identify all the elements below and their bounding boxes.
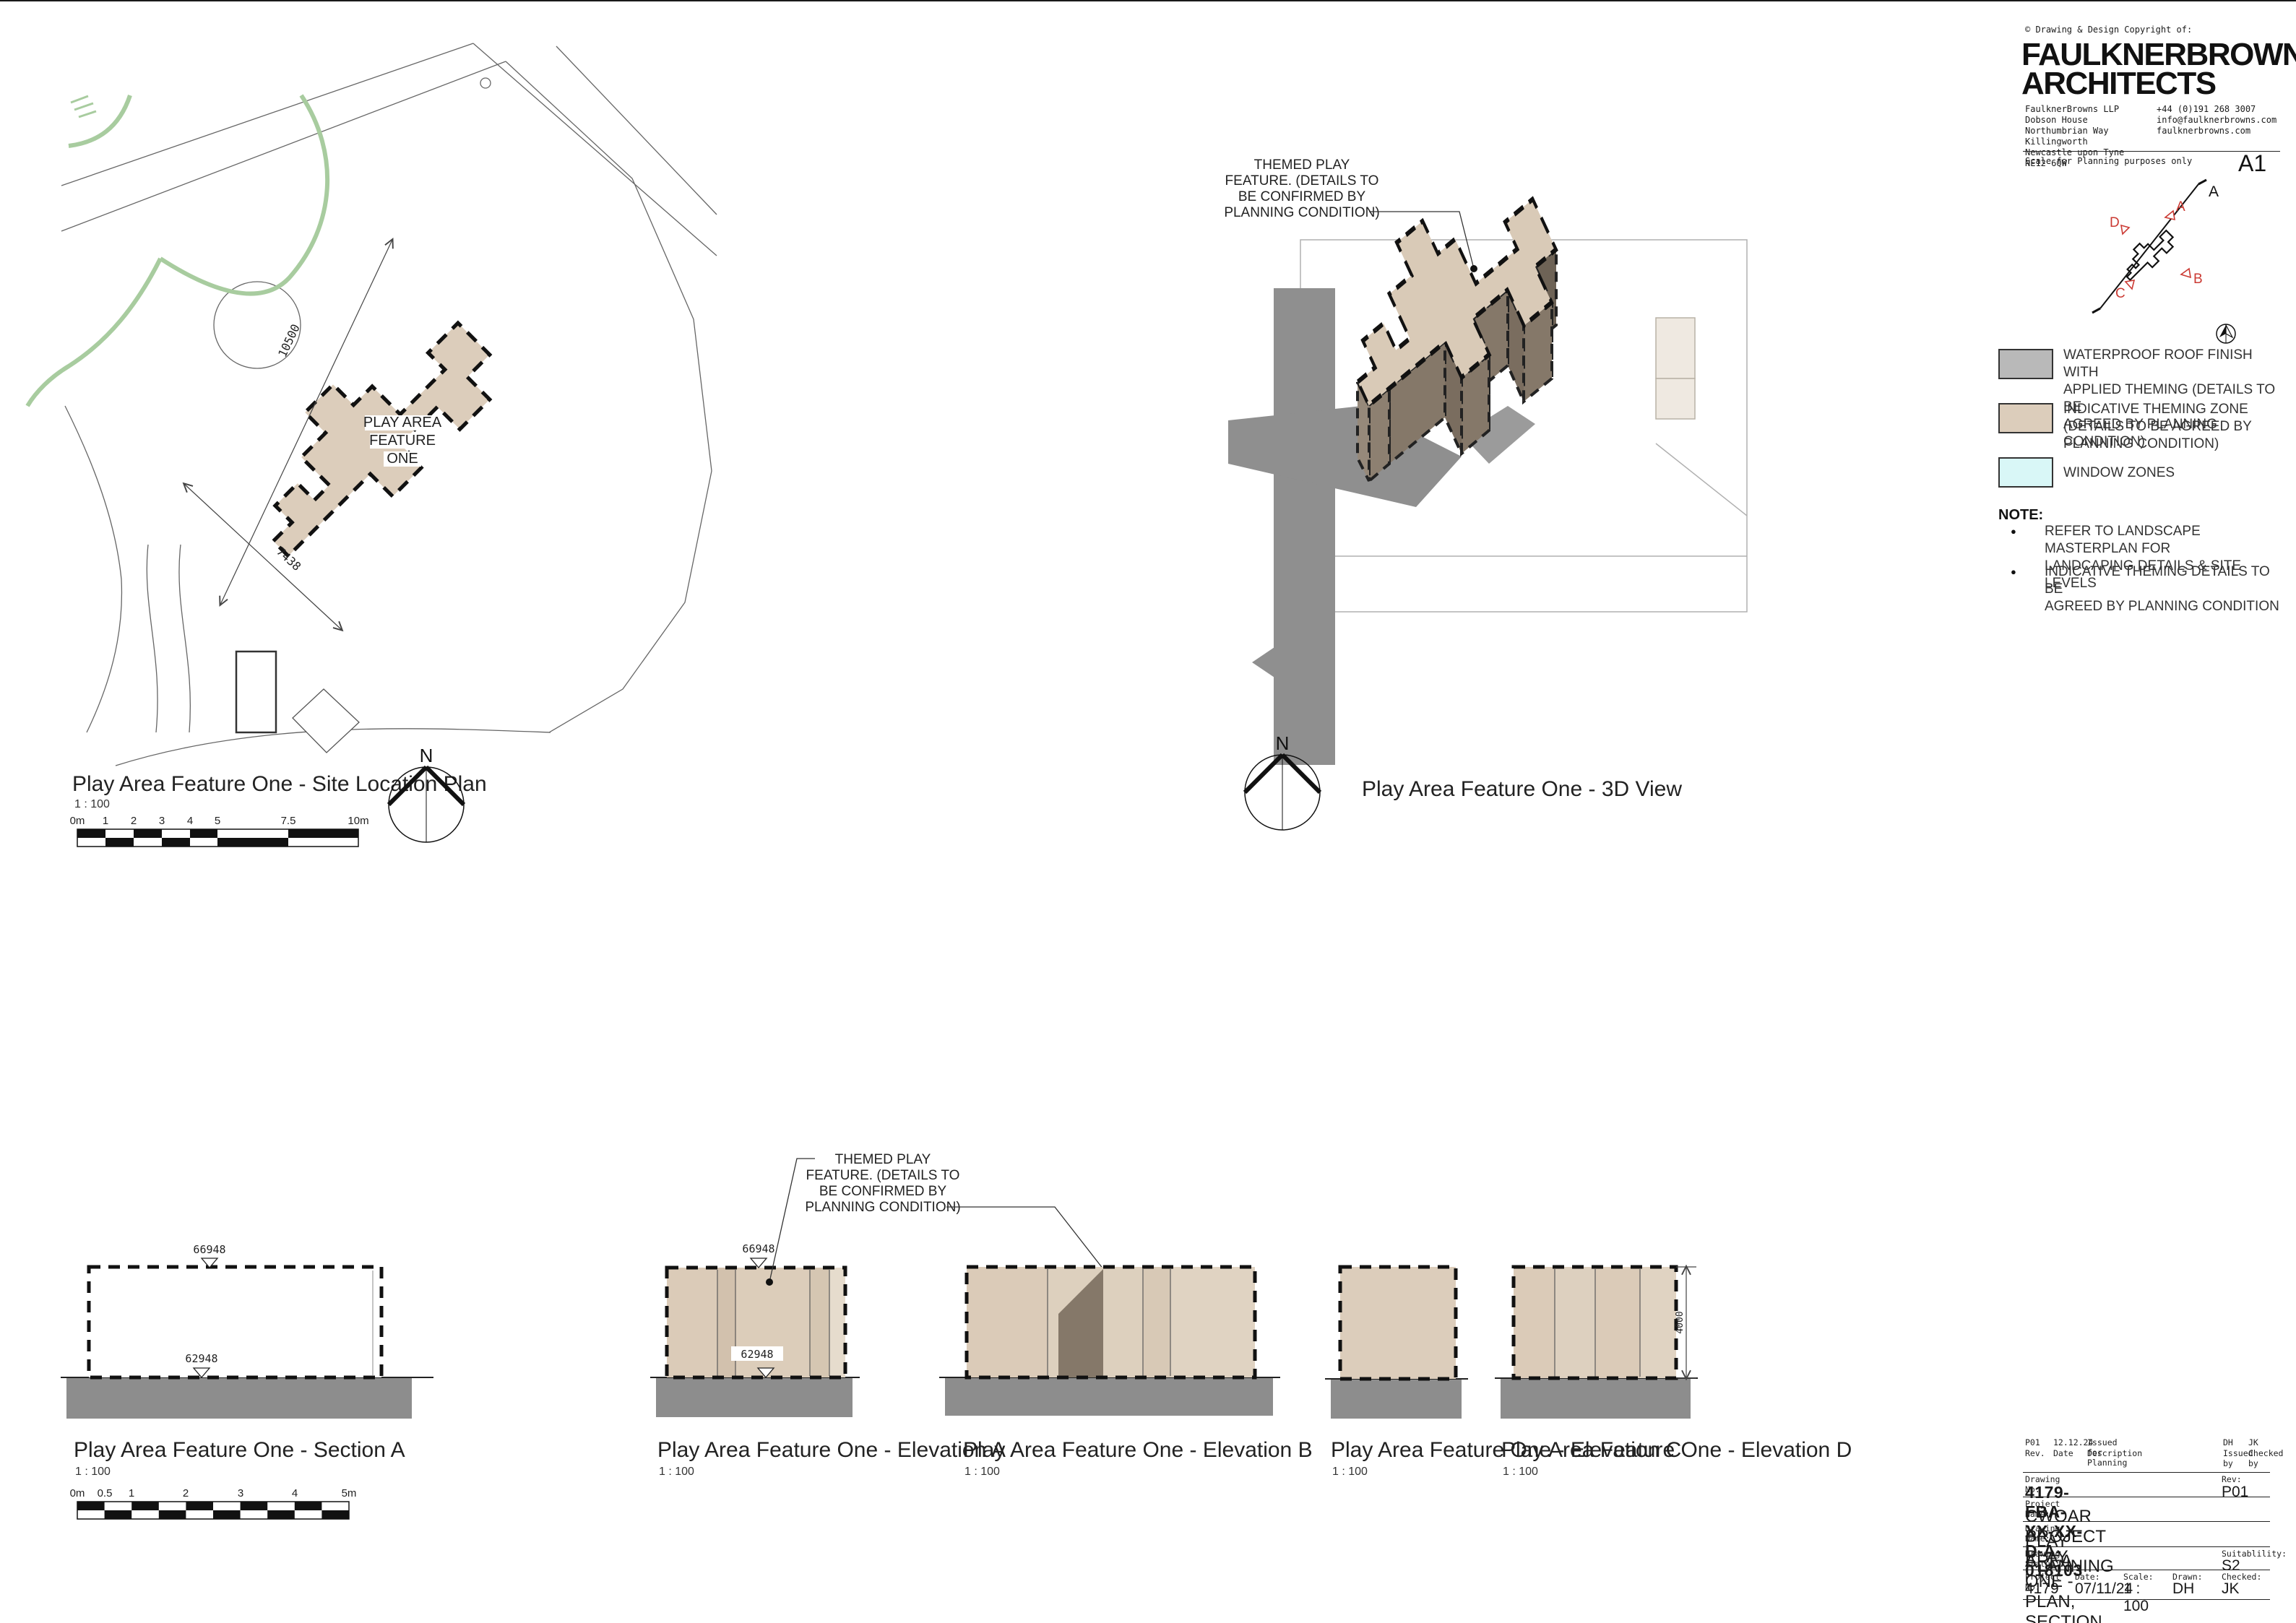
site-north-arrow: N [389,745,464,842]
project-no-value: 4179 [2025,1580,2059,1598]
svg-text:0.5: 0.5 [98,1487,113,1499]
site-scalebar: 0m 1 2 3 4 5 7.5 10m [70,815,369,847]
legend-swatch-window [1998,457,2053,488]
elevation-b-scale: 1 : 100 [964,1466,1000,1478]
drawing-canvas: 10500 7438 PLAY AREA FEATURE ONE Play Ar… [0,1,1994,1623]
elevation-a: 66948 62948 Play Area Feature One - Elev… [650,1242,1006,1478]
keyplan-elev-a: A [2176,199,2185,215]
svg-text:2: 2 [183,1487,189,1499]
level-ground: 62948 [185,1352,217,1365]
svg-text:PLANNING CONDITION): PLANNING CONDITION) [805,1200,960,1215]
site-plan-title: Play Area Feature One - Site Location Pl… [72,772,487,796]
svg-text:2: 2 [131,815,137,827]
section-a: 66948 62948 Play Area Feature One - Sect… [61,1243,433,1519]
rev-row-checked: JK [2248,1437,2258,1447]
rev-value: P01 [2222,1484,2248,1501]
svg-text:0m: 0m [70,1487,85,1499]
legend-label-theming: INDICATIVE THEMING ZONE (DETAILS TO BE A… [2063,401,2287,453]
site-plan-scale: 1 : 100 [74,798,110,810]
scale-value: 1 : 100 [2123,1580,2149,1615]
level-top: 66948 [742,1242,774,1255]
elevation-b: Play Area Feature One - Elevation B 1 : … [939,1267,1313,1478]
svg-text:FEATURE: FEATURE [369,433,436,449]
3d-window-zones [1656,318,1695,419]
north-label: N [1276,732,1290,754]
rev-head-rev: Rev. [2025,1448,2045,1458]
keyplan-elevation-arrows [2121,211,2191,289]
section-scalebar: 0m 0.5 1 2 3 4 5m [70,1487,357,1519]
svg-text:FEATURE. (DETAILS TO: FEATURE. (DETAILS TO [806,1168,960,1183]
svg-text:BE CONFIRMED BY: BE CONFIRMED BY [1238,189,1366,204]
elevation-d-title: Play Area Feature One - Elevation D [1501,1438,1852,1462]
copyright-note: © Drawing & Design Copyright of: [2025,25,2192,35]
notes-title: NOTE: [1998,507,2043,524]
drawn-value: DH [2172,1580,2194,1598]
svg-text:PLANNING CONDITION): PLANNING CONDITION) [1224,205,1379,220]
checked-value: JK [2222,1580,2240,1598]
level-ground: 62948 [741,1348,773,1361]
note-item-2: INDICATIVE THEMING DETAILS TO BE AGREED … [2045,563,2283,615]
drawing-sheet: 10500 7438 PLAY AREA FEATURE ONE Play Ar… [0,0,2296,1623]
3d-road-strip [1252,288,1335,765]
svg-text:THEMED PLAY: THEMED PLAY [835,1152,931,1167]
svg-text:PLAY AREA: PLAY AREA [363,415,442,430]
bullet-icon: ● [2011,526,2016,537]
svg-text:3: 3 [238,1487,243,1499]
legend-swatch-roof [1998,349,2053,379]
section-a-title: Play Area Feature One - Section A [74,1438,405,1462]
keyplan-elev-d: D [2110,215,2120,230]
rev-head-date: Date [2053,1448,2073,1458]
svg-text:4: 4 [187,815,193,827]
svg-text:7.5: 7.5 [281,815,296,827]
view-3d: THEMED PLAY FEATURE. (DETAILS TO BE CONF… [1224,149,1747,830]
rev-row-rev: P01 [2025,1437,2040,1447]
dim-4000: 4000 [1675,1311,1686,1333]
keyplan-elev-c: C [2115,286,2125,301]
svg-text:3: 3 [159,815,165,827]
rev-row-issued: DH [2223,1437,2233,1447]
keyplan-section-label: A [2209,183,2219,200]
elevation-d-scale: 1 : 100 [1503,1466,1538,1478]
svg-text:0m: 0m [70,815,85,827]
dim-10500: 10500 [275,322,303,360]
scale-note: Scale for Planning purposes only [2025,156,2192,166]
legend-label-window: WINDOW ZONES [2063,464,2287,482]
svg-text:THEMED PLAY: THEMED PLAY [1254,157,1350,173]
elevation-c-scale: 1 : 100 [1332,1466,1368,1478]
section-a-scale: 1 : 100 [75,1466,111,1478]
elevation-d: 4000 Play Area Feature One - Elevation D… [1495,1267,1852,1478]
firm-logo: FAULKNERBROWNS ARCHITECTS [2021,40,2296,98]
legend-swatch-theming [1998,403,2053,433]
play-area-footprint [225,291,512,578]
svg-text:FEATURE. (DETAILS TO: FEATURE. (DETAILS TO [1225,173,1379,189]
compass-icon [2214,321,2238,346]
svg-text:5m: 5m [342,1487,357,1499]
keyplan-elev-b: B [2193,272,2203,287]
elevation-a-title: Play Area Feature One - Elevation A [657,1438,1006,1462]
svg-text:BE CONFIRMED BY: BE CONFIRMED BY [819,1184,947,1199]
north-label: N [420,745,433,766]
firm-contact: +44 (0)191 268 3007 info@faulknerbrowns.… [2157,104,2276,137]
rev-head-checked: Checked by [2248,1448,2283,1468]
rev-label: Rev: [2222,1474,2242,1484]
site-diamond-outline [293,689,359,753]
svg-text:4: 4 [292,1487,298,1499]
bullet-icon: ● [2011,566,2016,577]
svg-text:ONE: ONE [387,451,418,467]
site-location-plan: 10500 7438 PLAY AREA FEATURE ONE Play Ar… [27,43,717,847]
dim-7438: 7438 [274,545,303,574]
3d-view-title: Play Area Feature One - 3D View [1362,777,1682,801]
svg-text:5: 5 [215,815,220,827]
svg-text:1: 1 [103,815,108,827]
rev-head-description: Description [2087,1448,2142,1458]
elevation-a-scale: 1 : 100 [659,1466,694,1478]
site-building-outline [236,652,276,732]
landscape-green-lines [27,95,327,406]
elevation-b-title: Play Area Feature One - Elevation B [963,1438,1313,1462]
level-top: 66948 [193,1243,225,1256]
svg-text:10m: 10m [348,815,368,827]
svg-text:1: 1 [129,1487,134,1499]
